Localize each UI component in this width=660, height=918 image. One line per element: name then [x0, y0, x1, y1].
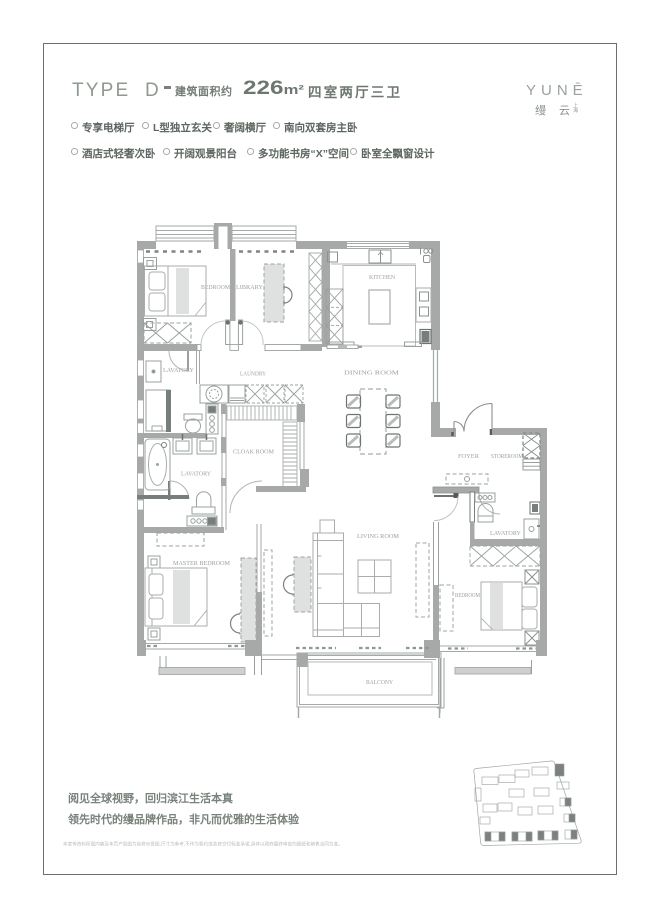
svg-text:LIVING ROOM: LIVING ROOM — [357, 533, 399, 540]
svg-text:LAVATORY: LAVATORY — [181, 471, 211, 478]
svg-text:STOREROOM: STOREROOM — [491, 453, 523, 460]
svg-text:LIBRARY: LIBRARY — [236, 284, 263, 291]
svg-text:KITCHEN: KITCHEN — [369, 274, 395, 281]
svg-text:LAUNDRY: LAUNDRY — [240, 371, 266, 378]
svg-text:BALCONY: BALCONY — [366, 679, 393, 686]
svg-text:DINING ROOM: DINING ROOM — [344, 370, 400, 377]
svg-text:FOYER: FOYER — [458, 453, 480, 460]
svg-text:BEDROOM: BEDROOM — [201, 284, 230, 291]
svg-text:CLOAK ROOM: CLOAK ROOM — [233, 449, 274, 456]
svg-text:MASTER BEDROOM: MASTER BEDROOM — [173, 560, 230, 567]
svg-text:LAVATORY: LAVATORY — [490, 530, 521, 537]
svg-text:BEDROOM: BEDROOM — [455, 593, 480, 599]
